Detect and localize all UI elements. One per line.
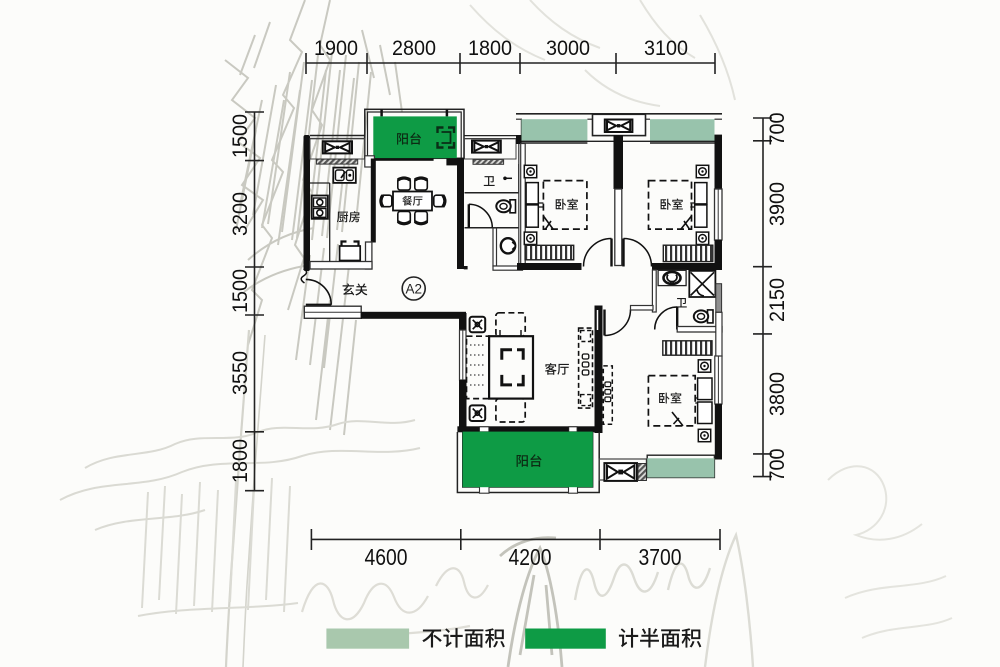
svg-text:2800: 2800 — [392, 37, 436, 60]
svg-text:1500: 1500 — [229, 269, 252, 313]
svg-text:3900: 3900 — [766, 182, 789, 226]
svg-text:700: 700 — [766, 113, 789, 146]
svg-text:1800: 1800 — [229, 439, 252, 483]
svg-text:1800: 1800 — [468, 37, 512, 60]
svg-text:3550: 3550 — [229, 351, 252, 395]
svg-text:4200: 4200 — [509, 544, 552, 570]
svg-text:1900: 1900 — [314, 37, 358, 60]
svg-text:3200: 3200 — [229, 192, 252, 236]
svg-text:3000: 3000 — [546, 37, 590, 60]
svg-text:2150: 2150 — [766, 278, 789, 322]
svg-text:A2: A2 — [405, 282, 422, 297]
svg-text:3700: 3700 — [639, 544, 682, 570]
svg-text:3800: 3800 — [766, 372, 789, 416]
svg-text:700: 700 — [766, 449, 789, 482]
svg-text:3100: 3100 — [644, 37, 688, 60]
svg-text:1500: 1500 — [229, 114, 252, 158]
svg-text:4600: 4600 — [365, 544, 408, 570]
